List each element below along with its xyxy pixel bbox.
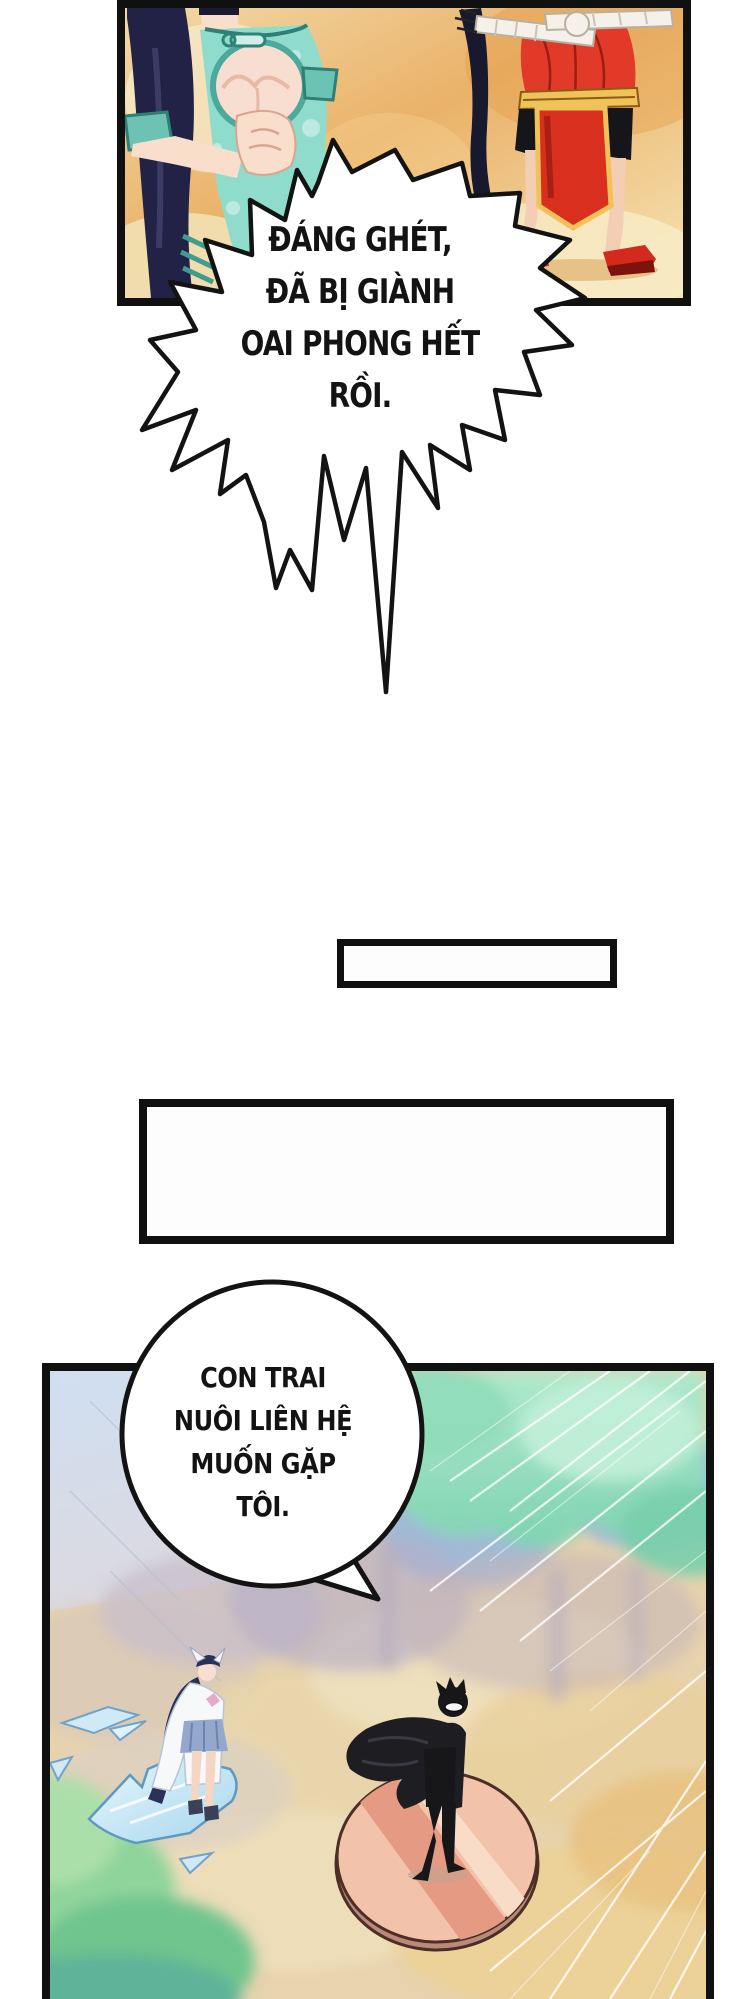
sleeve-right bbox=[303, 68, 337, 100]
shout-line: RỒI. bbox=[196, 370, 524, 422]
empty-caption-box-small bbox=[337, 939, 617, 988]
shout-line: ĐÁNG GHÉT, bbox=[196, 214, 524, 266]
talk-line: TÔI. bbox=[134, 1485, 392, 1528]
shout-line: ĐÃ BỊ GIÀNH bbox=[196, 266, 524, 318]
talk-line: NUÔI LIÊN HỆ bbox=[134, 1399, 392, 1442]
talk-line: CON TRAI bbox=[134, 1356, 392, 1399]
shout-line: OAI PHONG HẾT bbox=[196, 318, 524, 370]
face bbox=[198, 1663, 216, 1681]
shout-bubble-text: ĐÁNG GHÉT, ĐÃ BỊ GIÀNH OAI PHONG HẾT RỒI… bbox=[196, 214, 524, 422]
comic-page: ĐÁNG GHÉT, ĐÃ BỊ GIÀNH OAI PHONG HẾT RỒI… bbox=[0, 0, 750, 1999]
talk-line: MUỐN GẶP bbox=[134, 1442, 392, 1485]
talk-bubble-text: CON TRAI NUÔI LIÊN HỆ MUỐN GẶP TÔI. bbox=[134, 1356, 392, 1528]
shoe-right bbox=[204, 1805, 219, 1821]
empty-caption-box-large bbox=[139, 1099, 674, 1244]
fist bbox=[565, 12, 589, 36]
choker bbox=[199, 8, 239, 15]
goggle-glint bbox=[445, 1703, 463, 1712]
torso bbox=[424, 1747, 456, 1807]
shoe-left bbox=[188, 1799, 203, 1815]
